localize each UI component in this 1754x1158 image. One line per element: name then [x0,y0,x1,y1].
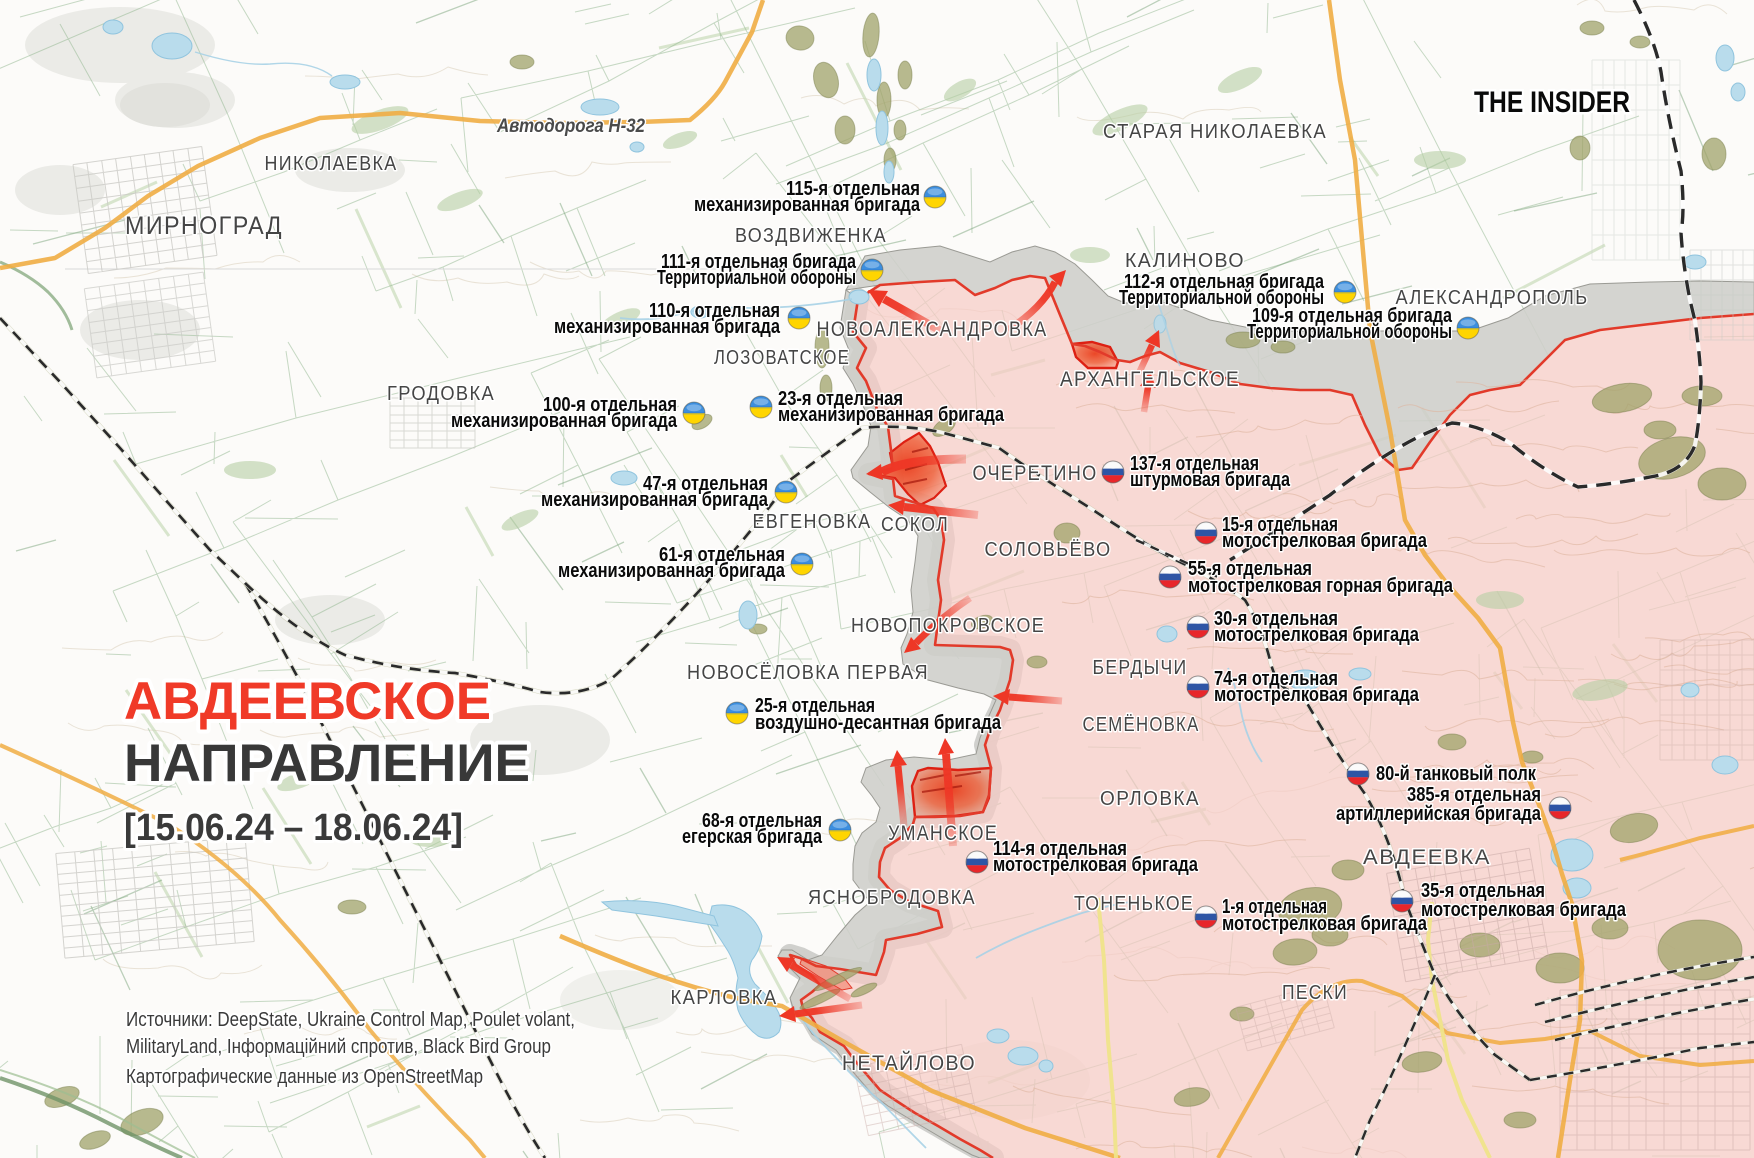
svg-text:механизированная бригада: механизированная бригада [778,404,1005,426]
svg-text:артиллерийская бригада: артиллерийская бригада [1336,803,1542,825]
svg-text:ТОНЕНЬКОЕ: ТОНЕНЬКОЕ [1074,893,1194,915]
svg-text:мотострелковая бригада: мотострелковая бригада [1421,899,1627,921]
svg-text:80-й танковый полк: 80-й танковый полк [1376,763,1537,785]
svg-text:АВДЕЕВКА: АВДЕЕВКА [1363,846,1491,869]
svg-text:Источники: DeepState, Ukraine: Источники: DeepState, Ukraine Control Ma… [126,1009,575,1031]
svg-text:МИРНОГРАД: МИРНОГРАД [125,212,283,240]
svg-text:штурмовая бригада: штурмовая бригада [1130,469,1291,491]
svg-text:СОЛОВЬЁВО: СОЛОВЬЁВО [985,539,1112,561]
svg-text:НОВОПОКРОВСКОЕ: НОВОПОКРОВСКОЕ [851,615,1045,637]
svg-text:ЕВГЕНОВКА: ЕВГЕНОВКА [753,511,872,533]
svg-text:Картографические данные из Ope: Картографические данные из OpenStreetMap [126,1066,483,1088]
svg-text:мотострелковая горная бригада: мотострелковая горная бригада [1188,575,1454,597]
svg-text:НАПРАВЛЕНИЕ: НАПРАВЛЕНИЕ [124,734,530,793]
svg-text:АВДЕЕВСКОЕ: АВДЕЕВСКОЕ [124,672,491,731]
svg-text:БЕРДЫЧИ: БЕРДЫЧИ [1093,657,1188,679]
svg-text:НЕТАЙЛОВО: НЕТАЙЛОВО [842,1051,976,1075]
svg-text:КАРЛОВКА: КАРЛОВКА [671,987,778,1009]
svg-text:мотострелковая бригада: мотострелковая бригада [1222,530,1428,552]
svg-text:[15.06.24 – 18.06.24]: [15.06.24 – 18.06.24] [124,807,463,849]
svg-text:СОКОЛ: СОКОЛ [881,514,949,536]
svg-text:ОЧЕРЕТИНО: ОЧЕРЕТИНО [973,462,1098,485]
svg-text:ОРЛОВКА: ОРЛОВКА [1100,788,1200,810]
svg-text:егерская бригада: егерская бригада [682,826,823,848]
svg-text:АРХАНГЕЛЬСКОЕ: АРХАНГЕЛЬСКОЕ [1060,368,1240,391]
svg-text:мотострелковая бригада: мотострелковая бригада [1214,624,1420,646]
svg-text:НОВОАЛЕКСАНДРОВКА: НОВОАЛЕКСАНДРОВКА [817,318,1048,341]
svg-text:мотострелковая бригада: мотострелковая бригада [1222,913,1428,935]
svg-text:механизированная бригада: механизированная бригада [558,560,786,582]
svg-text:Территориальной обороны: Территориальной обороны [1247,321,1452,343]
svg-text:ВОЗДВИЖЕНКА: ВОЗДВИЖЕНКА [735,225,887,247]
svg-text:ЯСНОБРОДОВКА: ЯСНОБРОДОВКА [808,887,976,909]
svg-text:ПЕСКИ: ПЕСКИ [1282,982,1348,1004]
svg-text:УМАНСКОЕ: УМАНСКОЕ [888,822,998,845]
svg-text:НОВОСЁЛОВКА ПЕРВАЯ: НОВОСЁЛОВКА ПЕРВАЯ [687,662,929,684]
svg-text:НИКОЛАЕВКА: НИКОЛАЕВКА [265,153,398,175]
svg-text:механизированная бригада: механизированная бригада [541,489,769,511]
svg-text:MilitaryLand, Інформаційний сп: MilitaryLand, Інформаційний спротив, Bla… [126,1036,551,1058]
svg-text:воздушно-десантная бригада: воздушно-десантная бригада [755,712,1002,734]
svg-text:THE INSIDER: THE INSIDER [1474,86,1630,119]
svg-text:Автодорога Н-32: Автодорога Н-32 [496,116,645,137]
svg-text:мотострелковая бригада: мотострелковая бригада [1214,684,1420,706]
svg-text:механизированная бригада: механизированная бригада [694,194,921,216]
svg-text:СЕМЁНОВКА: СЕМЁНОВКА [1083,714,1200,736]
svg-text:механизированная бригада: механизированная бригада [451,410,678,432]
svg-text:Территориальной обороны: Территориальной обороны [657,267,856,289]
svg-text:КАЛИНОВО: КАЛИНОВО [1125,250,1245,272]
svg-text:механизированная бригада: механизированная бригада [554,316,781,338]
svg-text:ЛОЗОВАТСКОЕ: ЛОЗОВАТСКОЕ [714,347,850,369]
svg-text:мотострелковая бригада: мотострелковая бригада [993,854,1199,876]
svg-text:СТАРАЯ НИКОЛАЕВКА: СТАРАЯ НИКОЛАЕВКА [1103,121,1327,143]
svg-text:ГРОДОВКА: ГРОДОВКА [387,383,495,405]
